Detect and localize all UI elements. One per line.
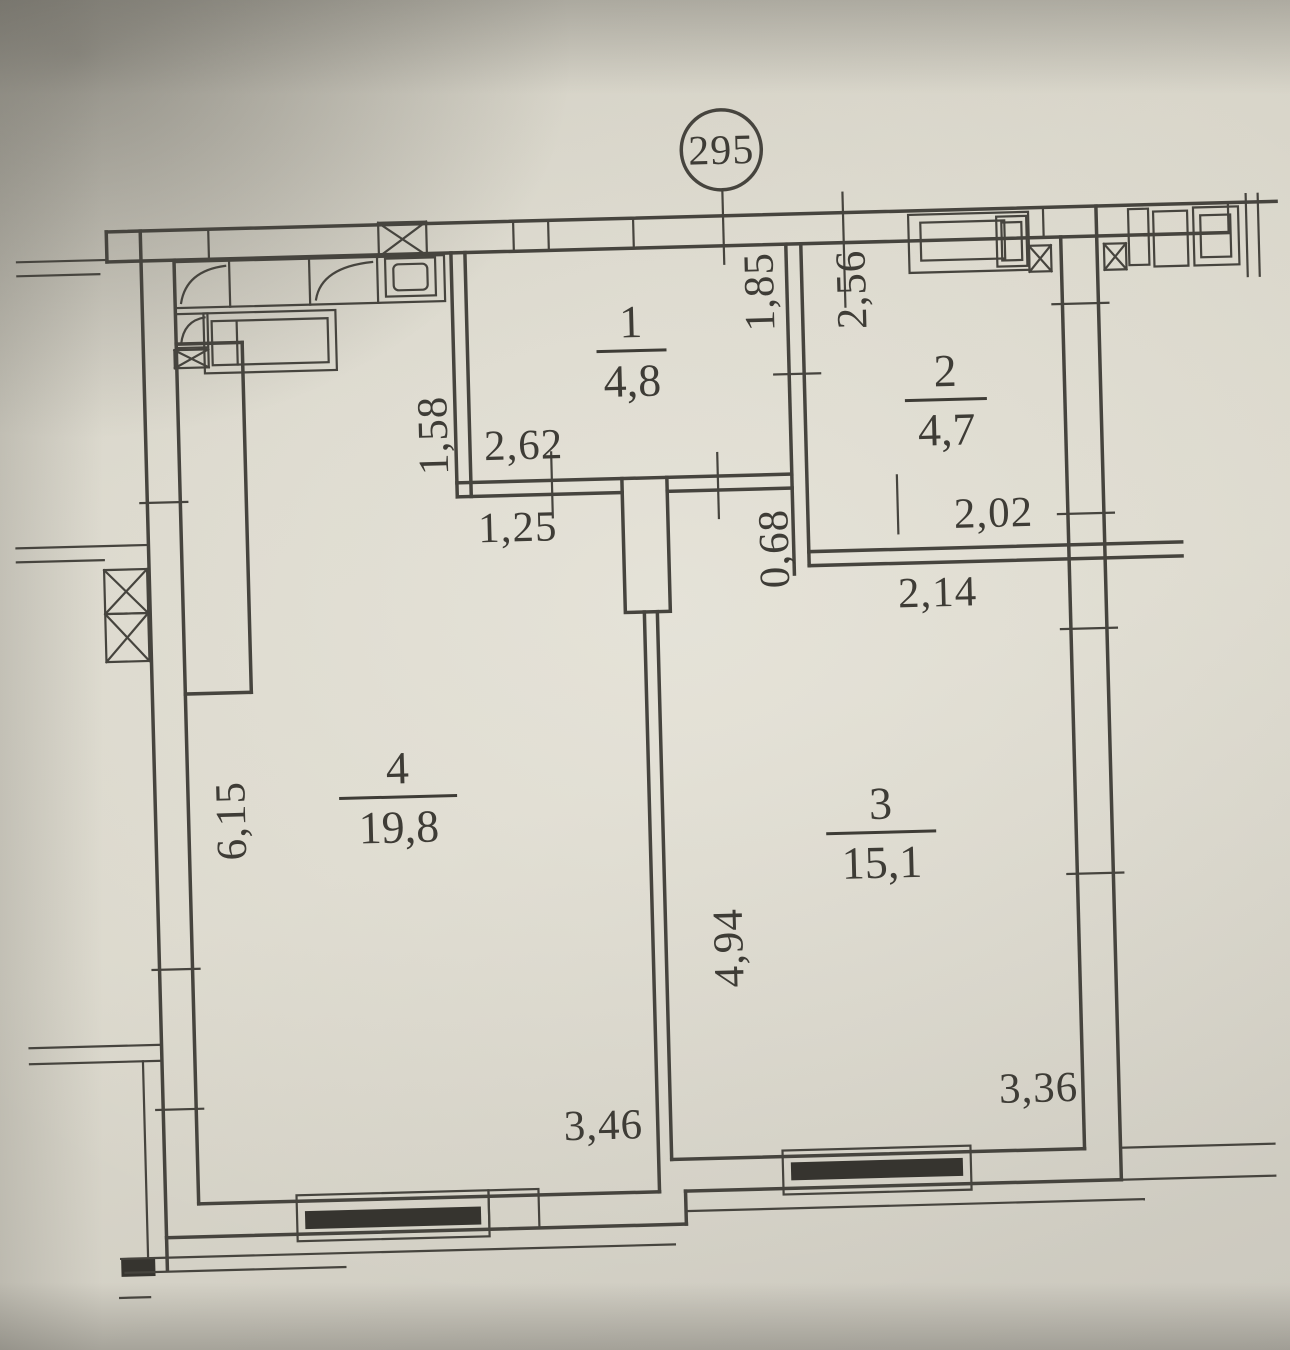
dimension-3-46: 3,46: [563, 1100, 644, 1151]
bathtub: [908, 211, 1052, 275]
dimension-1-25: 1,25: [477, 502, 558, 553]
floorplan-drawing: [0, 0, 1290, 1350]
room-1-fraction-line: [596, 349, 666, 354]
kitchen-fixtures: [171, 221, 447, 374]
dimension-1-58: 1,58: [408, 395, 459, 476]
room-2-fraction-line: [905, 397, 987, 402]
dimension-3-36: 3,36: [998, 1063, 1079, 1114]
room-2-area: 4,7: [917, 404, 976, 456]
room-label-1: 1 4,8: [580, 297, 683, 407]
room-1-area: 4,8: [603, 355, 662, 407]
dimension-2-62: 2,62: [483, 420, 564, 471]
dimension-0-68: 0,68: [749, 508, 800, 589]
room-label-4: 4 19,8: [334, 743, 463, 854]
room-4-number: 4: [334, 743, 461, 795]
dimension-2-02: 2,02: [953, 488, 1034, 539]
left-shaft-and-balcony: [16, 545, 168, 1300]
room-3-fraction-line: [826, 830, 936, 836]
room-2-number: 2: [890, 346, 1001, 397]
balcony-lines: [119, 1144, 1277, 1273]
room-label-2: 2 4,7: [890, 346, 1003, 456]
room-label-3: 3 15,1: [821, 778, 942, 889]
room2-bottom-wall: [809, 542, 1182, 566]
room-3-number: 3: [821, 778, 940, 829]
room-3-area: 15,1: [841, 836, 923, 889]
left-wall: [133, 228, 266, 1270]
room-4-fraction-line: [339, 794, 457, 800]
floorplan-plan: 1 4,8 2 4,7 3 15,1 4 19,8 2,62 1,25 2,02…: [0, 0, 1290, 1350]
dimension-2-14: 2,14: [897, 567, 978, 618]
floorplan-photo: 1 4,8 2 4,7 3 15,1 4 19,8 2,62 1,25 2,02…: [0, 0, 1290, 1350]
dimension-2-56: 2,56: [826, 249, 877, 330]
room-1-number: 1: [580, 297, 681, 348]
dimension-4-94: 4,94: [704, 908, 755, 989]
room-4-area: 19,8: [358, 801, 440, 854]
partition-wall: [644, 612, 672, 1192]
dimension-6-15: 6,15: [206, 781, 257, 862]
dimension-1-85: 1,85: [734, 252, 785, 333]
apartment-number-badge: 295: [688, 126, 755, 176]
right-wall: [1050, 206, 1131, 1181]
top-wall: [16, 201, 1279, 276]
